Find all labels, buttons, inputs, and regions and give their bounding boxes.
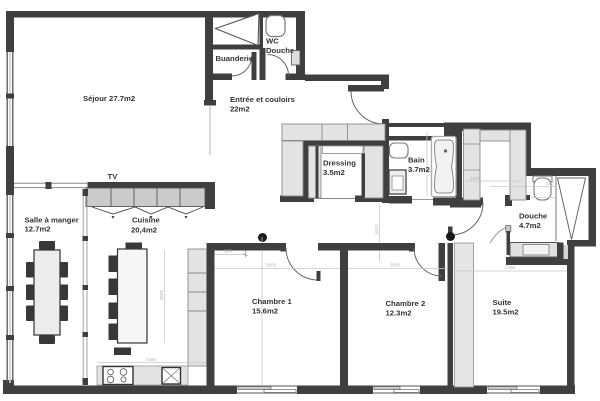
svg-text:Entrée et couloirs: Entrée et couloirs [230, 95, 295, 104]
svg-text:3455: 3455 [146, 357, 157, 362]
svg-text:Cuisine: Cuisine [132, 216, 160, 225]
svg-text:Suite: Suite [493, 298, 513, 307]
svg-text:12.3m2: 12.3m2 [386, 309, 412, 318]
svg-text:Dressing: Dressing [323, 159, 356, 168]
svg-text:965: 965 [224, 249, 232, 254]
svg-text:22m2: 22m2 [230, 104, 250, 113]
svg-text:4.7m2: 4.7m2 [519, 221, 541, 230]
svg-text:3600: 3600 [159, 289, 164, 300]
svg-text:Bain: Bain [408, 156, 425, 165]
svg-text:3600: 3600 [266, 263, 277, 268]
svg-text:Chambre 2: Chambre 2 [386, 299, 426, 308]
svg-text:Chambre 1: Chambre 1 [252, 297, 292, 306]
svg-text:20,4m2: 20,4m2 [131, 226, 157, 235]
svg-text:Buanderie: Buanderie [216, 54, 254, 63]
svg-text:Séjour 27.7m2: Séjour 27.7m2 [83, 94, 135, 103]
svg-text:Salle à manger: Salle à manger [25, 216, 79, 225]
svg-text:Douche: Douche [266, 46, 295, 55]
svg-text:15.6m2: 15.6m2 [252, 307, 278, 316]
svg-text:TV: TV [108, 172, 119, 181]
svg-text:1875: 1875 [470, 176, 481, 181]
svg-text:19.5m2: 19.5m2 [493, 308, 519, 317]
svg-text:180: 180 [546, 181, 554, 186]
svg-text:3050: 3050 [390, 263, 401, 268]
svg-text:WC: WC [266, 37, 279, 46]
svg-text:1013: 1013 [374, 224, 379, 235]
svg-text:3.5m2: 3.5m2 [323, 168, 345, 177]
svg-text:12.7m2: 12.7m2 [25, 225, 51, 234]
svg-text:Douche: Douche [519, 212, 548, 221]
svg-text:3.7m2: 3.7m2 [408, 165, 430, 174]
svg-text:2398: 2398 [505, 265, 516, 270]
